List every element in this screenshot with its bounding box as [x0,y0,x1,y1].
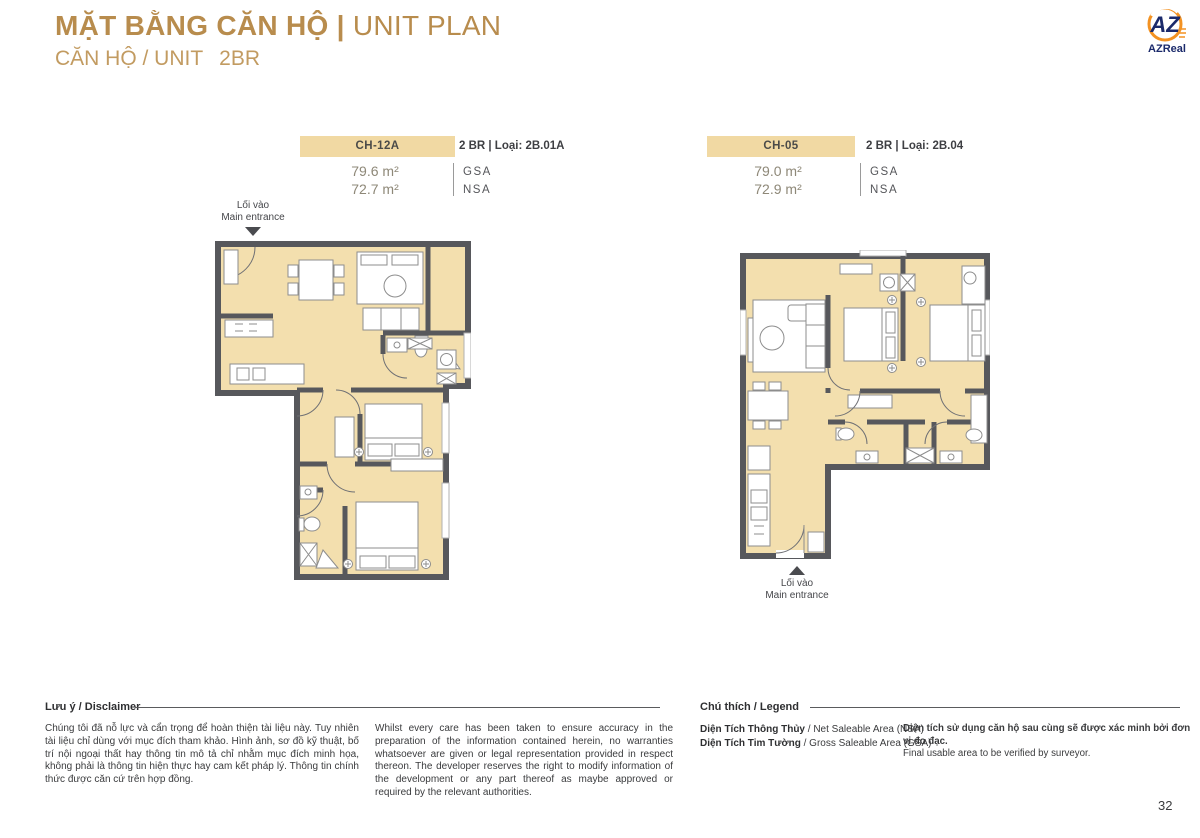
page-number: 32 [1158,798,1172,813]
living-room [748,300,825,372]
entrance-label-en: Main entrance [203,212,303,224]
unit-areas-ch05: 79.0 m² 72.9 m² [707,162,849,198]
unit-area-labels-ch05: GSA NSA [870,163,899,199]
balcony-railing [860,250,906,256]
legend-heading: Chú thích / Legend [700,701,799,713]
entrance-label-en: Main entrance [747,590,847,602]
legend-item-gsa: Diện Tích Tim Tường / Gross Saleable Are… [700,737,931,751]
legend-item-nsa: Diện Tích Thông Thủy / Net Saleable Area… [700,723,931,737]
washing-machine [437,350,456,384]
legend-note: Diện tích sử dụng căn hộ sau cùng sẽ đượ… [903,723,1193,761]
unit-type-label-ch05: 2 BR | Loại: 2B.04 [866,140,963,152]
disclaimer-text-en: Whilst every care has been taken to ensu… [375,723,673,800]
floor-plan-ch12a [215,238,471,580]
gsa-value: 79.0 m² [707,162,849,180]
legend-items: Diện Tích Thông Thủy / Net Saleable Area… [700,723,931,750]
sink-icon [940,451,962,463]
page-title-separator: | [337,10,353,41]
entrance-label-ch05: Lối vào Main entrance [747,566,847,602]
floor-plan-ch05 [740,250,990,562]
svg-text:AZ: AZ [1149,12,1181,37]
unit-areas-ch12a: 79.6 m² 72.7 m² [300,162,450,198]
toilet-icon [304,517,320,531]
page-subtitle: CĂN HỘ / UNIT2BR [55,47,260,71]
sink-icon [387,338,407,352]
gsa-value: 79.6 m² [300,162,450,180]
nsa-label: NSA [463,181,492,199]
sofa-icon [806,304,825,368]
entrance-arrow-down-icon [245,227,261,236]
entrance-label-ch12a: Lối vào Main entrance [203,200,303,236]
azreal-logo-icon: AZ AZReal [1138,4,1196,56]
page-title-en: UNIT PLAN [353,10,501,41]
sink-icon [300,486,317,499]
gsa-label: GSA [463,163,492,181]
gsa-label: GSA [870,163,899,181]
nsa-label: NSA [870,181,899,199]
unit-code-badge-ch05: CH-05 [707,136,855,157]
page-title: MẶT BẰNG CĂN HỘ | UNIT PLAN [55,10,501,42]
page-title-vi: MẶT BẰNG CĂN HỘ [55,10,337,41]
disclaimer-rule [135,707,660,708]
legend-rule [810,707,1180,708]
bedroom-3 [344,502,431,570]
master-bed [357,252,423,330]
disclaimer-text-vi: Chúng tôi đã nỗ lực và cẩn trọng để hoàn… [45,723,359,787]
balcony-ledge [391,459,443,471]
area-divider [860,163,861,196]
balcony-railing [464,333,471,378]
disclaimer-heading: Lưu ý / Disclaimer [45,701,140,713]
armchair-icon [788,305,808,321]
shoe-cabinet-icon [808,532,824,552]
toilet-icon [838,428,854,440]
nsa-value: 72.7 m² [300,180,450,198]
window [442,403,449,453]
entrance-arrow-up-icon [789,566,805,575]
unit-code-badge-ch12a: CH-12A [300,136,455,157]
fridge-icon [748,446,770,470]
legend-note-en: Final usable area to be verified by surv… [903,748,1090,759]
sink-icon [856,451,878,463]
entrance-label-vi: Lối vào [203,200,303,212]
entry-closet [224,250,238,284]
tv-console-icon [748,318,753,362]
toilet-icon [966,429,982,441]
subtitle-label: CĂN HỘ / UNIT [55,47,203,70]
unit-plan-page: MẶT BẰNG CĂN HỘ | UNIT PLAN CĂN HỘ / UNI… [0,0,1200,838]
window [740,310,746,355]
area-divider [453,163,454,196]
unit-area-labels-ch12a: GSA NSA [463,163,492,199]
azreal-logo: AZ AZReal [1138,4,1196,56]
coffee-table-icon [760,326,784,350]
legend-note-vi: Diện tích sử dụng căn hộ sau cùng sẽ đượ… [903,723,1190,747]
entrance-label-vi: Lối vào [747,578,847,590]
wardrobe-icon [335,417,354,457]
svg-text:AZReal: AZReal [1148,43,1186,55]
round-chair-icon [384,275,406,297]
subtitle-value: 2BR [219,47,260,70]
window [442,483,449,538]
unit-type-label-ch12a: 2 BR | Loại: 2B.01A [459,140,564,152]
shelf-icon [840,264,872,274]
nsa-value: 72.9 m² [707,180,849,198]
sofa-icon [363,308,419,330]
dresser-icon [962,266,985,304]
